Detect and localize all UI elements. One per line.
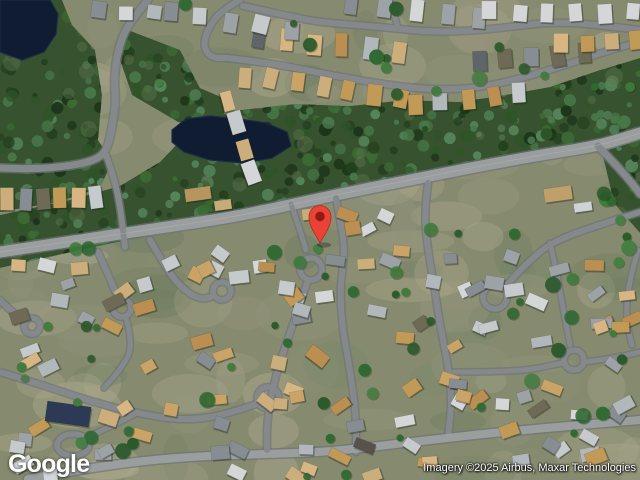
map-viewport[interactable]: Google Imagery ©2025 Airbus, Maxar Techn… bbox=[0, 0, 640, 480]
google-logo[interactable]: Google bbox=[8, 452, 89, 477]
map-attribution: Imagery ©2025 Airbus, Maxar Technologies bbox=[423, 463, 636, 474]
satellite-imagery[interactable] bbox=[0, 0, 640, 480]
